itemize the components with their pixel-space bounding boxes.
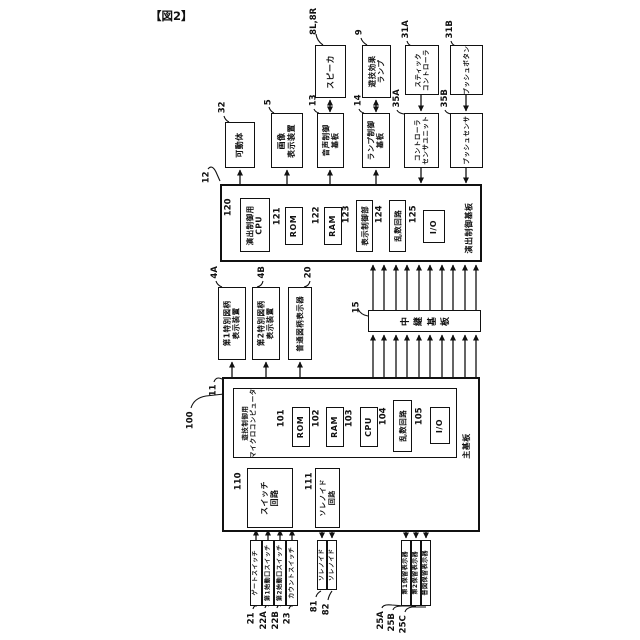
ref-normal-display: 20 — [303, 264, 315, 280]
ref-audio-control: 13 — [308, 92, 320, 108]
push-button-box: プッシュボタン — [450, 45, 483, 95]
ref-movable-body: 32 — [217, 99, 229, 115]
ref-hold-normal: 25C — [398, 613, 410, 635]
start-switch-2-label: 第2始動口スイッチ — [276, 545, 284, 602]
switch-circuit-label: スイッチ 回路 — [260, 481, 280, 515]
main-io-label: I/O — [435, 418, 445, 432]
speaker-box: スピーカ — [315, 45, 346, 98]
solenoid-81-label: ソレノイド — [318, 549, 326, 582]
game-micro-name: 遊技制御用 マイクロコンピュータ — [236, 390, 262, 456]
ref-effect-rom: 121 — [272, 205, 284, 227]
effect-rom-label: ROM — [289, 215, 299, 237]
special-display-2-label: 第2特別図柄 表示装置 — [257, 301, 276, 347]
audio-control-board-label: 音声制御 基板 — [321, 125, 340, 157]
ref-count-switch: 23 — [282, 610, 294, 626]
lamp-control-board-box: ランプ制御 基板 — [362, 113, 390, 168]
ref-special-1: 4A — [209, 264, 221, 280]
main-rom-box: ROM — [292, 407, 310, 447]
ref-effect-lamp: 9 — [354, 26, 366, 38]
ref-controller-sensor: 35A — [391, 87, 403, 109]
ref-relay-board: 15 — [351, 299, 363, 315]
gate-switch-box: ゲートスイッチ — [250, 540, 262, 606]
ref-main-ram: 102 — [311, 407, 323, 429]
ref-effect-board: 12 — [201, 169, 213, 185]
effect-random-box: 乱数回路 — [389, 200, 406, 252]
count-switch-label: カウントスイッチ — [288, 547, 296, 599]
ref-start-switch-1: 22A — [258, 609, 270, 631]
ref-speaker: 8L,8R — [309, 5, 321, 37]
special-display-1-label: 第1特別図柄 表示装置 — [223, 301, 242, 347]
main-random-label: 乱数回路 — [398, 410, 407, 442]
ref-switch-circuit: 110 — [233, 470, 245, 492]
push-button-label: プッシュボタン — [462, 46, 470, 95]
start-switch-1-box: 第1始動口スイッチ — [262, 540, 274, 606]
special-display-2-box: 第2特別図柄 表示装置 — [252, 287, 280, 360]
hold-display-1-label: 第1保留表示器 — [402, 551, 410, 595]
ref-game-micro: 100 — [185, 409, 197, 431]
main-ram-label: RAM — [330, 416, 340, 438]
ref-effect-io: 125 — [408, 203, 420, 225]
ref-solenoid-82: 82 — [321, 601, 333, 617]
main-io-box: I/O — [430, 407, 450, 444]
effect-ram-label: RAM — [328, 215, 338, 237]
normal-display-box: 普通図柄表示器 — [288, 287, 312, 360]
ref-push-button: 31B — [444, 18, 456, 40]
ref-solenoid-81: 81 — [309, 598, 321, 614]
effect-lamp-label: 遊技効果 ランプ — [367, 56, 386, 88]
movable-body-box: 可動体 — [225, 122, 255, 168]
gate-switch-label: ゲートスイッチ — [252, 550, 260, 596]
solenoid-82-label: ソレノイド — [328, 549, 336, 582]
speaker-label: スピーカ — [326, 55, 336, 89]
stick-controller-label: スティック コントローラ — [414, 49, 430, 91]
main-random-box: 乱数回路 — [393, 400, 412, 452]
main-rom-label: ROM — [296, 416, 306, 438]
display-control-box: 表示制御部 — [356, 200, 373, 252]
main-board-name: 主基板 — [458, 430, 476, 462]
ref-main-board: 11 — [208, 382, 220, 398]
effect-random-label: 乱数回路 — [393, 210, 402, 242]
stick-controller-box: スティック コントローラ — [405, 45, 439, 95]
lamp-control-board-label: ランプ制御 基板 — [367, 121, 386, 161]
ref-start-switch-2: 22B — [270, 609, 282, 631]
controller-sensor-unit-label: コントローラ センサユニット — [413, 116, 429, 165]
effect-lamp-box: 遊技効果 ランプ — [362, 45, 391, 98]
ref-solenoid-circuit: 111 — [304, 470, 316, 492]
relay-board-label: 中継基板 — [400, 315, 448, 328]
ref-display-control: 123 — [341, 203, 353, 225]
solenoid-82-box: ソレノイド — [327, 540, 337, 590]
start-switch-2-box: 第2始動口スイッチ — [274, 540, 286, 606]
push-sensor-label: プッシュセンサ — [462, 116, 470, 165]
count-switch-box: カウントスイッチ — [286, 540, 298, 606]
relay-board-box: 中継基板 — [368, 310, 481, 332]
effect-io-label: I/O — [429, 219, 439, 233]
ref-effect-cpu: 120 — [223, 196, 235, 218]
ref-main-random: 104 — [378, 405, 390, 427]
patent-figure: 【図2】 — [0, 0, 640, 640]
ref-lamp-control: 14 — [353, 92, 365, 108]
effect-control-board-name: 演出制御基板 — [458, 200, 480, 256]
display-control-label: 表示制御部 — [360, 206, 369, 246]
ref-hold-2: 25B — [386, 611, 398, 633]
solenoid-81-box: ソレノイド — [317, 540, 327, 590]
ref-push-sensor: 35B — [439, 87, 451, 109]
ref-stick-controller: 31A — [400, 18, 412, 40]
movable-body-label: 可動体 — [235, 132, 245, 158]
hold-display-2-box: 第2保留表示器 — [411, 540, 421, 606]
normal-display-label: 普通図柄表示器 — [295, 296, 304, 352]
ref-effect-ram: 122 — [311, 204, 323, 226]
ref-main-io: 105 — [414, 405, 426, 427]
ref-special-2: 4B — [256, 264, 268, 280]
main-cpu-label: CPU — [364, 417, 374, 437]
hold-display-2-label: 第2保留表示器 — [412, 551, 420, 595]
switch-circuit-box: スイッチ 回路 — [247, 468, 293, 528]
hold-display-1-box: 第1保留表示器 — [401, 540, 411, 606]
special-display-1-box: 第1特別図柄 表示装置 — [218, 287, 246, 360]
push-sensor-box: プッシュセンサ — [450, 113, 483, 168]
image-display-box: 画像 表示装置 — [271, 113, 303, 168]
normal-hold-display-box: 普図保留表示器 — [421, 540, 431, 606]
effect-io-box: I/O — [423, 210, 445, 243]
effect-cpu-box: 演出制御用 CPU — [240, 198, 270, 252]
audio-control-board-box: 音声制御 基板 — [317, 113, 344, 168]
normal-hold-display-label: 普図保留表示器 — [422, 550, 430, 596]
ref-image-display: 5 — [263, 96, 275, 108]
main-ram-box: RAM — [326, 407, 344, 447]
ref-main-rom: 101 — [276, 407, 288, 429]
effect-cpu-label: 演出制御用 CPU — [246, 205, 265, 245]
solenoid-circuit-box: ソレノイド 回路 — [315, 468, 340, 528]
main-cpu-box: CPU — [360, 407, 378, 447]
image-display-label: 画像 表示装置 — [277, 124, 297, 158]
effect-ram-box: RAM — [324, 207, 342, 245]
start-switch-1-label: 第1始動口スイッチ — [264, 545, 272, 602]
effect-rom-box: ROM — [285, 207, 303, 245]
ref-main-cpu: 103 — [344, 407, 356, 429]
controller-sensor-unit-box: コントローラ センサユニット — [404, 113, 439, 168]
solenoid-circuit-label: ソレノイド 回路 — [319, 479, 337, 517]
ref-gate-switch: 21 — [246, 610, 258, 626]
ref-effect-random: 124 — [374, 203, 386, 225]
